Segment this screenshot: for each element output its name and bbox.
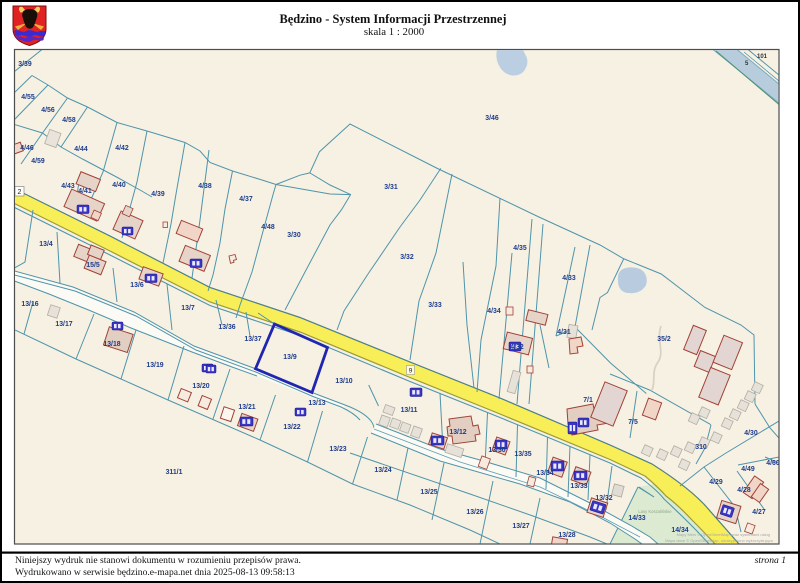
svg-text:Lasy Koszalińskie: Lasy Koszalińskie — [638, 509, 672, 514]
svg-text:4/59: 4/59 — [31, 158, 45, 165]
svg-text:13/10: 13/10 — [335, 378, 352, 385]
svg-text:4/60: 4/60 — [766, 460, 780, 467]
svg-text:4/39: 4/39 — [151, 191, 165, 198]
svg-text:4/31: 4/31 — [557, 329, 571, 336]
svg-text:4/28: 4/28 — [737, 487, 751, 494]
svg-text:4/34: 4/34 — [487, 308, 501, 315]
svg-text:4/46: 4/46 — [20, 145, 34, 152]
svg-text:13/7: 13/7 — [181, 305, 195, 312]
svg-text:7/1: 7/1 — [583, 397, 593, 404]
svg-text:13/34: 13/34 — [536, 470, 553, 477]
svg-text:13/16: 13/16 — [21, 301, 38, 308]
svg-text:3/33: 3/33 — [428, 302, 442, 309]
svg-text:13/6: 13/6 — [130, 282, 144, 289]
svg-text:4/33: 4/33 — [562, 275, 576, 282]
svg-text:Będzino - System Informacji Pr: Będzino - System Informacji Przestrzenne… — [279, 12, 506, 26]
svg-text:3/39: 3/39 — [18, 61, 32, 68]
svg-text:4/40: 4/40 — [112, 182, 126, 189]
svg-text:13/27: 13/27 — [512, 523, 529, 530]
svg-text:15/5: 15/5 — [86, 262, 100, 269]
svg-text:Niniejszy wydruk nie stanowi d: Niniejszy wydruk nie stanowi dokumentu w… — [15, 555, 301, 566]
svg-text:2: 2 — [18, 189, 22, 196]
svg-text:4/48: 4/48 — [261, 224, 275, 231]
svg-text:35/2: 35/2 — [657, 336, 671, 343]
svg-text:4/56: 4/56 — [41, 107, 55, 114]
svg-text:Mapy Mein © OpenStreetMap wraz: Mapy Mein © OpenStreetMap wraz systemami… — [677, 532, 770, 537]
svg-text:13/37: 13/37 — [244, 336, 261, 343]
svg-text:Mapa dane © OpenStreetMap, udo: Mapa dane © OpenStreetMap, udostępniono … — [665, 538, 774, 543]
svg-text:13/11: 13/11 — [401, 407, 418, 414]
svg-text:4/32: 4/32 — [510, 344, 524, 351]
svg-text:13/25: 13/25 — [420, 489, 437, 496]
svg-text:310: 310 — [695, 444, 707, 451]
svg-text:3/32: 3/32 — [400, 254, 414, 261]
svg-text:4/58: 4/58 — [62, 117, 76, 124]
svg-text:4/44: 4/44 — [74, 146, 88, 153]
svg-text:13/19: 13/19 — [146, 362, 163, 369]
svg-text:skala 1 : 2000: skala 1 : 2000 — [364, 26, 424, 38]
svg-text:13/24: 13/24 — [374, 467, 391, 474]
svg-text:9: 9 — [409, 368, 413, 375]
svg-text:4/42: 4/42 — [115, 145, 129, 152]
svg-text:13/26: 13/26 — [466, 509, 483, 516]
svg-text:13/20: 13/20 — [192, 383, 209, 390]
svg-text:13/21: 13/21 — [238, 404, 255, 411]
svg-text:13/30: 13/30 — [488, 447, 505, 454]
svg-text:strona 1: strona 1 — [755, 555, 786, 566]
svg-text:13/12: 13/12 — [449, 429, 466, 436]
svg-text:13/23: 13/23 — [329, 446, 346, 453]
svg-text:4/41: 4/41 — [78, 188, 92, 195]
svg-text:Wydrukowano w serwisie będzino: Wydrukowano w serwisie będzino.e-mapa.ne… — [15, 567, 295, 578]
svg-text:3/31: 3/31 — [384, 184, 398, 191]
svg-text:101: 101 — [757, 54, 768, 60]
svg-text:311/1: 311/1 — [166, 469, 183, 476]
svg-text:13/17: 13/17 — [55, 321, 72, 328]
svg-text:13/18: 13/18 — [103, 341, 120, 348]
svg-text:13/36: 13/36 — [218, 324, 235, 331]
svg-text:4/27: 4/27 — [752, 509, 766, 516]
svg-text:4/43: 4/43 — [61, 183, 75, 190]
svg-text:13/13: 13/13 — [308, 400, 325, 407]
svg-text:13/22: 13/22 — [283, 424, 300, 431]
svg-text:14/33: 14/33 — [628, 515, 645, 522]
svg-text:4/29: 4/29 — [709, 479, 723, 486]
svg-text:13/28: 13/28 — [558, 532, 575, 539]
svg-text:7/5: 7/5 — [628, 419, 638, 426]
svg-text:13/9: 13/9 — [283, 354, 297, 361]
svg-text:4/55: 4/55 — [21, 94, 35, 101]
svg-text:4/37: 4/37 — [239, 196, 253, 203]
svg-text:3/30: 3/30 — [287, 232, 301, 239]
svg-text:4/30: 4/30 — [744, 430, 758, 437]
svg-text:13/35: 13/35 — [514, 451, 531, 458]
svg-text:13/4: 13/4 — [39, 241, 53, 248]
svg-text:13/32: 13/32 — [595, 495, 612, 502]
svg-text:3/46: 3/46 — [485, 115, 499, 122]
svg-text:4/35: 4/35 — [513, 245, 527, 252]
svg-text:13/33: 13/33 — [570, 483, 587, 490]
svg-text:4/49: 4/49 — [741, 466, 755, 473]
svg-text:4/38: 4/38 — [198, 183, 212, 190]
